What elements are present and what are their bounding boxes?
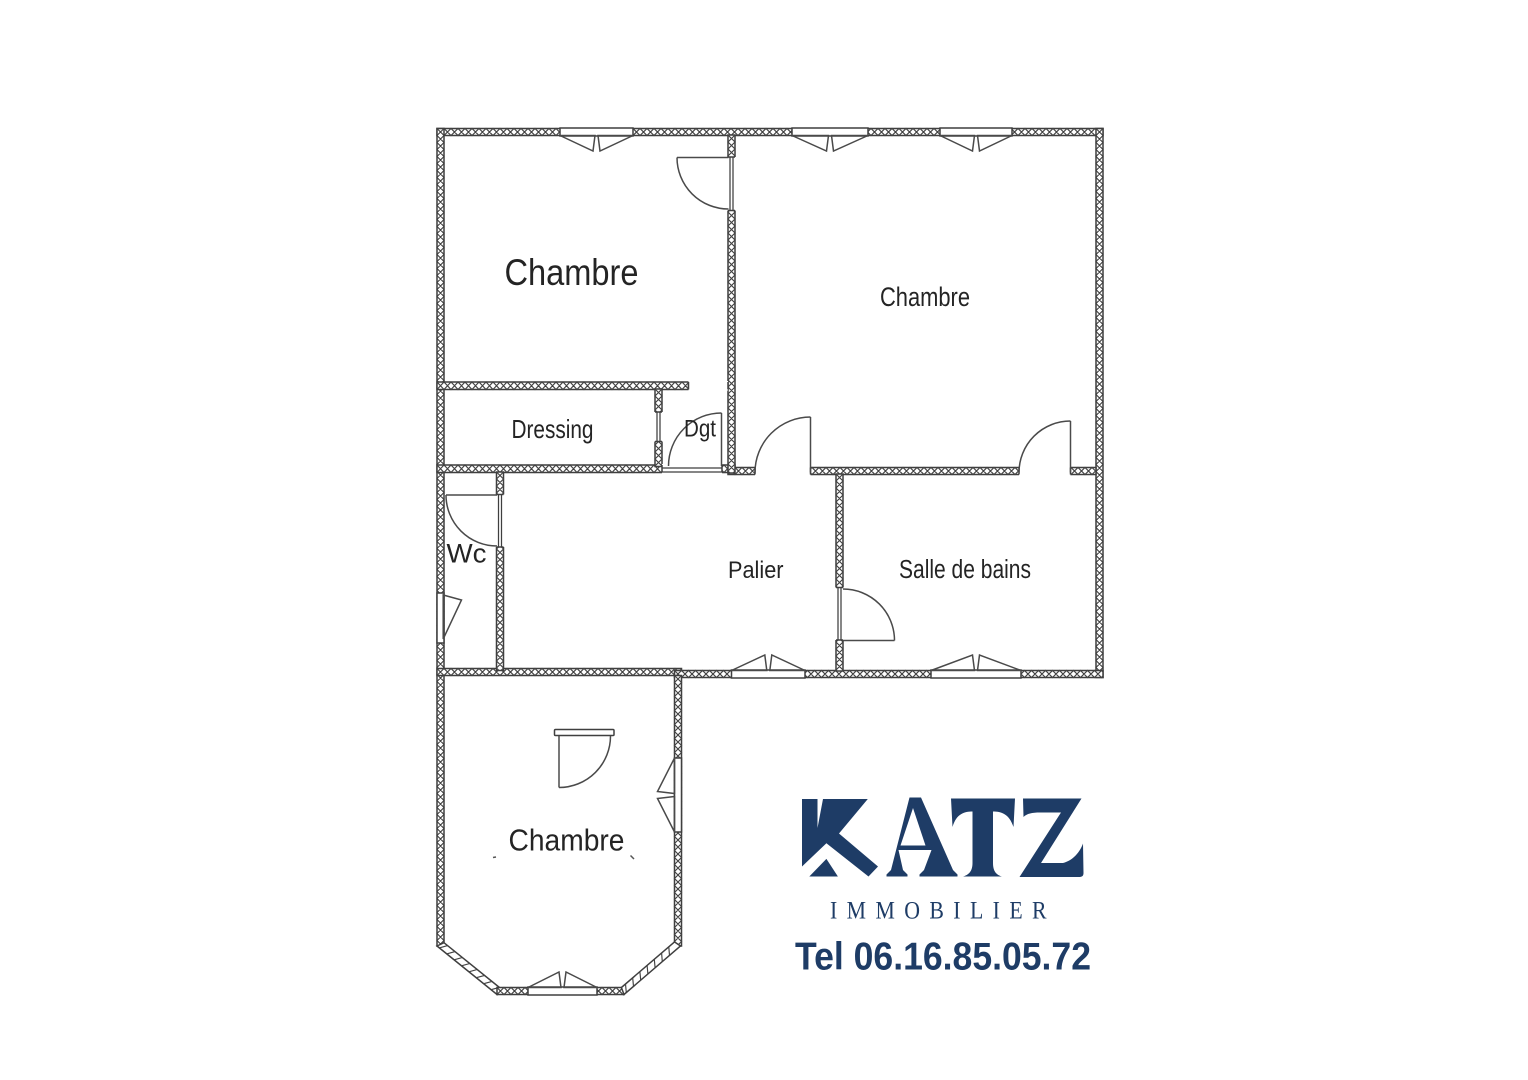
- svg-text:Chambre: Chambre: [880, 282, 970, 312]
- svg-text:Tel 06.16.85.05.72: Tel 06.16.85.05.72: [795, 936, 1091, 979]
- svg-text:Chambre: Chambre: [509, 823, 625, 858]
- svg-text:IMMOBILIER: IMMOBILIER: [830, 896, 1056, 925]
- svg-text:Palier: Palier: [728, 557, 784, 584]
- svg-text:Salle de bains: Salle de bains: [899, 556, 1031, 584]
- svg-text:Chambre: Chambre: [505, 251, 639, 293]
- svg-text:Dgt: Dgt: [684, 416, 716, 443]
- svg-text:Wc: Wc: [447, 539, 487, 569]
- svg-text:Dressing: Dressing: [512, 416, 594, 444]
